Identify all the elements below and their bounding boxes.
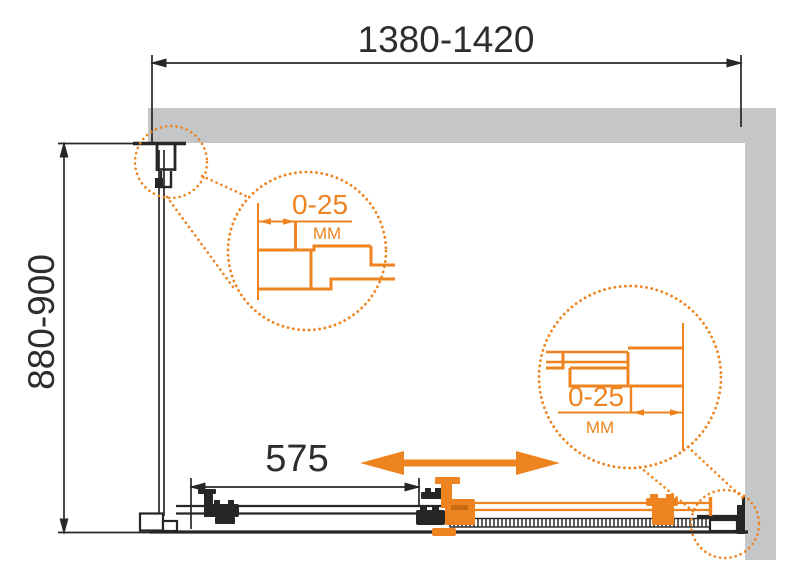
- side-panel-glass: [159, 150, 164, 516]
- installation-diagram: 1380-1420 880-900: [0, 0, 800, 576]
- arrowhead-left: [152, 59, 166, 67]
- depth-dimension: [58, 143, 150, 533]
- wall-right: [745, 108, 776, 560]
- corner-profile-bottom-left: [140, 514, 177, 532]
- arrowhead-bottom: [60, 519, 68, 533]
- slide-track: [450, 519, 742, 528]
- callout-connector: [202, 176, 248, 197]
- arrowhead: [632, 409, 644, 415]
- arrowhead: [259, 218, 271, 224]
- wall-top: [148, 108, 776, 143]
- detail-right-value: 0-25: [568, 381, 624, 412]
- detail-left-unit: MM: [313, 224, 341, 243]
- slide-direction-arrow: [360, 451, 560, 475]
- detail-left-value: 0-25: [292, 189, 348, 220]
- width-dimension-label: 1380-1420: [358, 19, 535, 60]
- detail-circle-zoom-right: [539, 286, 721, 468]
- depth-dimension-label: 880-900: [21, 254, 62, 390]
- shower-enclosure-plan-drawing: 1380-1420 880-900: [0, 0, 800, 576]
- arrowhead-right: [727, 59, 741, 67]
- roller-left: [198, 489, 239, 524]
- arrowhead-left: [191, 483, 205, 491]
- detail-right-unit: MM: [586, 418, 614, 437]
- arrowhead-right: [405, 483, 419, 491]
- door-dimension-label: 575: [265, 438, 328, 480]
- arrowhead-top: [60, 143, 68, 157]
- callout-connector: [688, 447, 746, 501]
- callout-connector: [167, 197, 233, 287]
- arrowhead: [670, 409, 682, 415]
